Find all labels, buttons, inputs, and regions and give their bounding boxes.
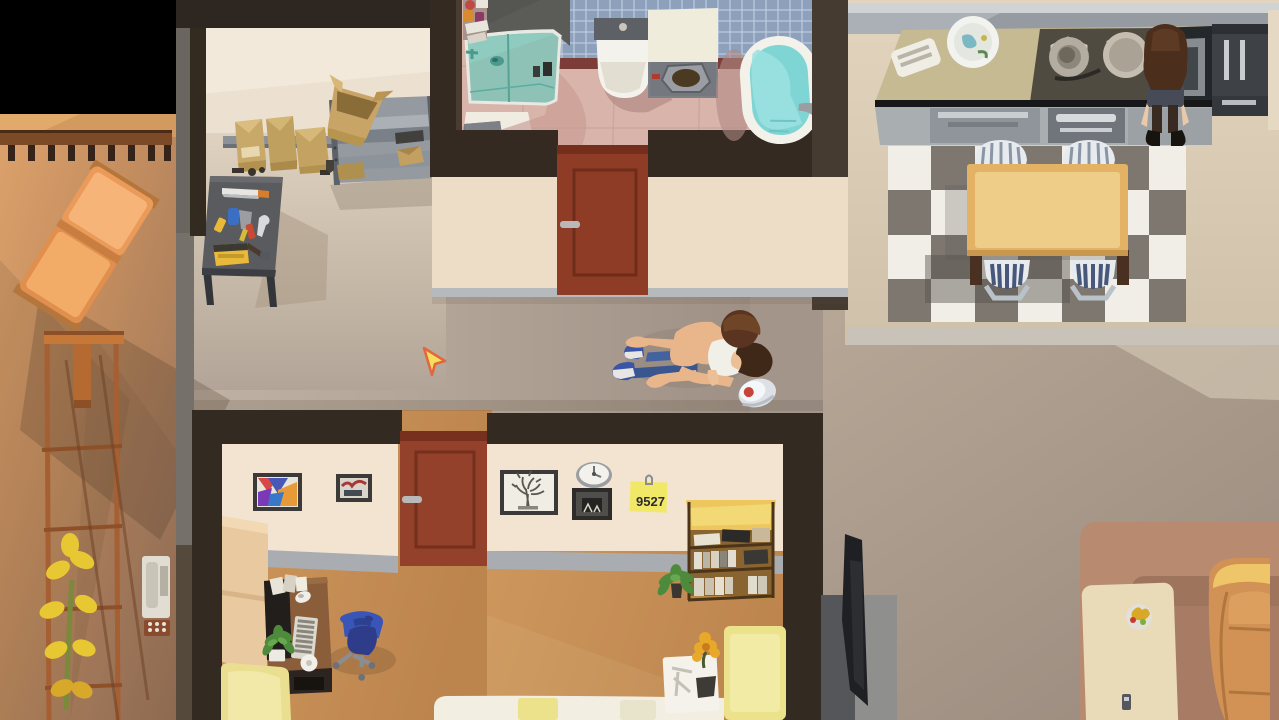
svg-text:9527: 9527	[636, 494, 665, 509]
